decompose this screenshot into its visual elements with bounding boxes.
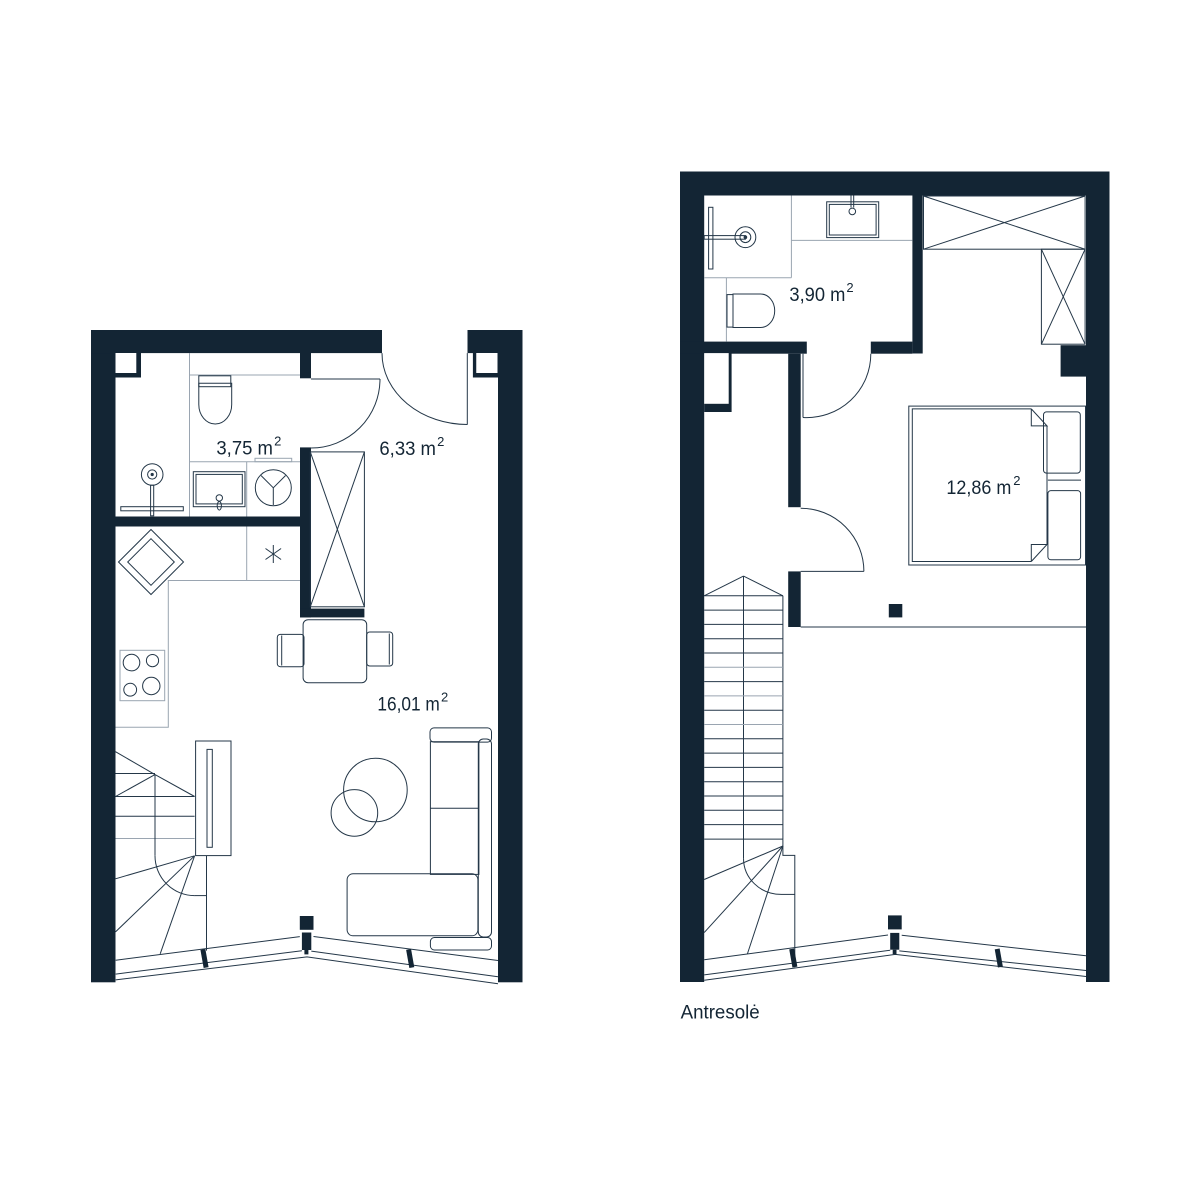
svg-text:16,01 m: 16,01 m xyxy=(377,693,439,715)
svg-text:3,90 m: 3,90 m xyxy=(789,284,845,306)
svg-text:12,86 m: 12,86 m xyxy=(946,477,1011,499)
svg-text:3,75 m: 3,75 m xyxy=(216,438,273,460)
svg-text:2: 2 xyxy=(274,434,281,449)
svg-text:2: 2 xyxy=(437,434,444,449)
svg-text:2: 2 xyxy=(846,280,853,295)
svg-text:2: 2 xyxy=(1013,473,1020,488)
svg-text:2: 2 xyxy=(441,689,448,704)
svg-text:Antresolė: Antresolė xyxy=(681,1001,760,1023)
svg-text:6,33 m: 6,33 m xyxy=(379,438,436,460)
